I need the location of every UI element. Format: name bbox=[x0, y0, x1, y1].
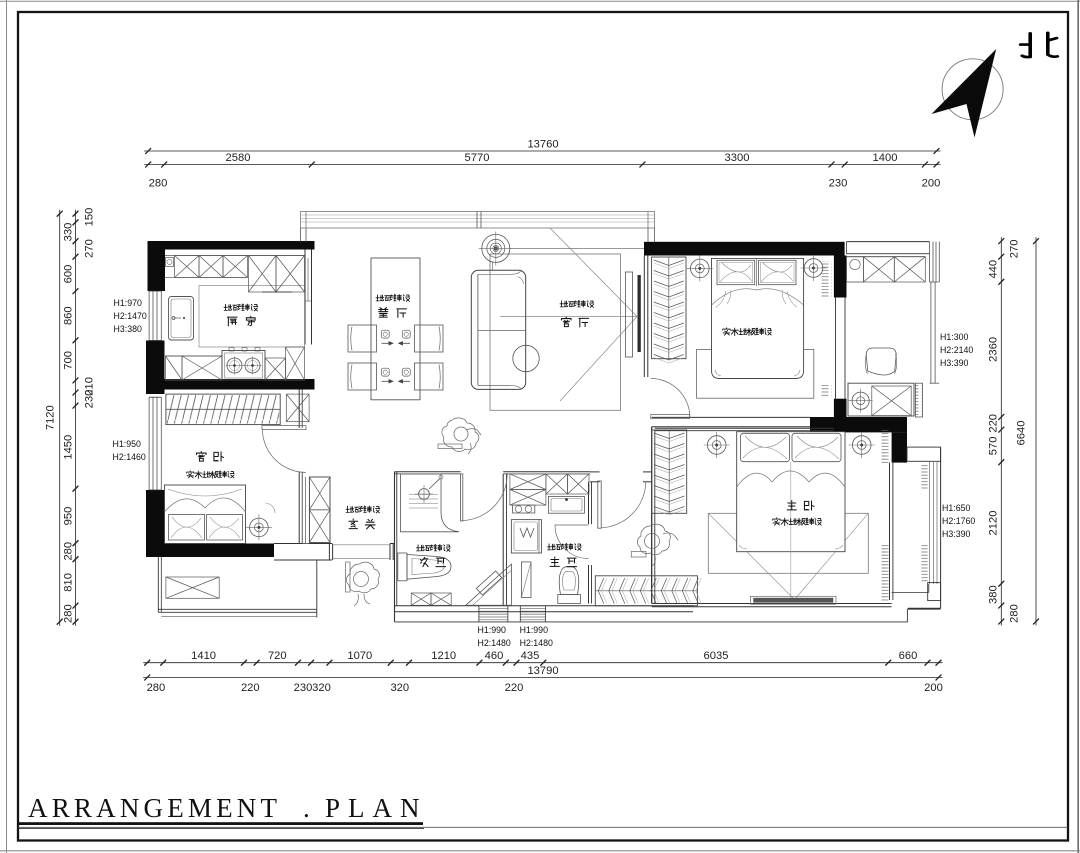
svg-text:280: 280 bbox=[63, 604, 75, 623]
svg-text:570: 570 bbox=[988, 437, 1000, 456]
svg-text:230: 230 bbox=[829, 178, 848, 190]
svg-text:270: 270 bbox=[1009, 240, 1021, 259]
svg-text:380: 380 bbox=[988, 585, 1000, 604]
svg-text:270: 270 bbox=[84, 239, 96, 258]
svg-text:200: 200 bbox=[922, 178, 941, 190]
svg-text:H1:950: H1:950 bbox=[113, 439, 141, 449]
svg-text:H2:1470: H2:1470 bbox=[114, 311, 147, 321]
svg-text:220: 220 bbox=[988, 414, 1000, 433]
svg-text:320: 320 bbox=[312, 682, 331, 694]
svg-text:720: 720 bbox=[268, 650, 287, 662]
svg-text:280: 280 bbox=[147, 682, 166, 694]
svg-text:150: 150 bbox=[84, 208, 96, 227]
svg-text:13760: 13760 bbox=[527, 139, 558, 151]
svg-text:H2:2140: H2:2140 bbox=[940, 345, 973, 355]
svg-text:7120: 7120 bbox=[45, 405, 57, 430]
svg-text:220: 220 bbox=[241, 682, 260, 694]
svg-text:6035: 6035 bbox=[704, 650, 729, 662]
svg-text:460: 460 bbox=[485, 650, 504, 662]
svg-text:220: 220 bbox=[505, 682, 524, 694]
svg-text:H2:1760: H2:1760 bbox=[942, 516, 975, 526]
svg-text:H2:1480: H2:1480 bbox=[478, 638, 511, 648]
svg-text:2360: 2360 bbox=[988, 337, 1000, 362]
svg-text:280: 280 bbox=[63, 542, 75, 561]
svg-text:600: 600 bbox=[63, 265, 75, 284]
svg-text:860: 860 bbox=[63, 306, 75, 325]
svg-text:5770: 5770 bbox=[465, 152, 490, 164]
svg-text:H1:970: H1:970 bbox=[114, 298, 142, 308]
svg-text:330: 330 bbox=[63, 223, 75, 242]
svg-text:H3:380: H3:380 bbox=[114, 324, 142, 334]
svg-text:.: . bbox=[303, 793, 310, 823]
svg-text:230: 230 bbox=[84, 390, 96, 409]
svg-text:440: 440 bbox=[988, 260, 1000, 279]
svg-text:6640: 6640 bbox=[1016, 421, 1028, 446]
svg-text:3300: 3300 bbox=[725, 152, 750, 164]
svg-text:2120: 2120 bbox=[988, 511, 1000, 536]
svg-text:950: 950 bbox=[63, 507, 75, 526]
svg-text:H1:990: H1:990 bbox=[478, 625, 506, 635]
svg-text:1210: 1210 bbox=[431, 650, 456, 662]
svg-text:280: 280 bbox=[1009, 604, 1021, 623]
svg-text:1400: 1400 bbox=[873, 152, 898, 164]
svg-text:700: 700 bbox=[63, 351, 75, 370]
svg-text:H1:990: H1:990 bbox=[520, 625, 548, 635]
svg-text:320: 320 bbox=[390, 682, 409, 694]
svg-text:280: 280 bbox=[149, 178, 168, 190]
svg-text:H3:390: H3:390 bbox=[940, 358, 968, 368]
svg-text:ARRANGEMENT: ARRANGEMENT bbox=[28, 793, 281, 823]
svg-text:1070: 1070 bbox=[347, 650, 372, 662]
svg-text:H1:300: H1:300 bbox=[940, 332, 968, 342]
svg-text:1450: 1450 bbox=[63, 435, 75, 460]
svg-text:H3:390: H3:390 bbox=[942, 529, 970, 539]
svg-text:435: 435 bbox=[521, 650, 540, 662]
svg-text:13790: 13790 bbox=[527, 665, 558, 677]
svg-text:200: 200 bbox=[924, 682, 943, 694]
svg-text:1410: 1410 bbox=[191, 650, 216, 662]
svg-text:660: 660 bbox=[899, 650, 918, 662]
svg-text:H2:1460: H2:1460 bbox=[113, 452, 146, 462]
svg-text:PLAN: PLAN bbox=[325, 793, 428, 823]
svg-text:H1:650: H1:650 bbox=[942, 503, 970, 513]
svg-text:H2:1480: H2:1480 bbox=[520, 638, 553, 648]
svg-text:230: 230 bbox=[294, 682, 313, 694]
svg-text:810: 810 bbox=[63, 573, 75, 592]
svg-text:2580: 2580 bbox=[226, 152, 251, 164]
